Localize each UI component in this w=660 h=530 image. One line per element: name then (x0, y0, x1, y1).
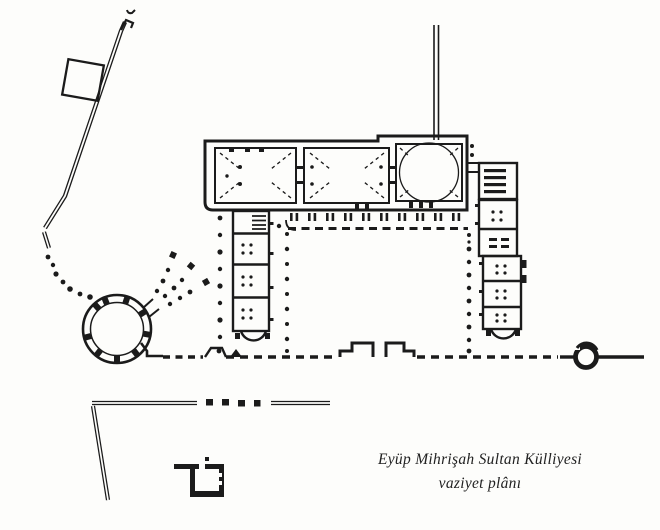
caption-line-1: Eyüp Mihrişah Sultan Külliyesi (330, 448, 630, 472)
right-colonnade-dots (467, 233, 472, 353)
left-colonnade-dots (217, 216, 223, 354)
caption: Eyüp Mihrişah Sultan Külliyesi vaziyet p… (330, 448, 630, 496)
courtyard-gate (340, 343, 414, 357)
stair-hall (479, 163, 517, 199)
inner-left-colonnade-dots (285, 232, 289, 353)
caption-line-2: vaziyet plânı (330, 472, 630, 496)
right-cell-wing (467, 144, 527, 338)
aqueduct-line (434, 25, 439, 140)
dome-circle (400, 143, 459, 202)
approach-dotted-path (46, 255, 93, 300)
left-wing-apse (241, 331, 266, 340)
boundary-wall-southwest (92, 399, 330, 500)
small-pavilion (174, 457, 224, 497)
fountain-ring (575, 343, 597, 367)
tomb-colonnade-rays (155, 251, 210, 306)
scanned-figure: Eyüp Mihrişah Sultan Külliyesi vaziyet p… (0, 0, 660, 530)
access-road (44, 10, 135, 248)
right-wing-apse (491, 329, 516, 338)
street-wall (141, 343, 644, 368)
left-cell-wing (233, 211, 274, 340)
roadside-plot (62, 59, 104, 101)
dome-corner-dashes (220, 148, 458, 198)
domed-halls-block (205, 136, 467, 210)
